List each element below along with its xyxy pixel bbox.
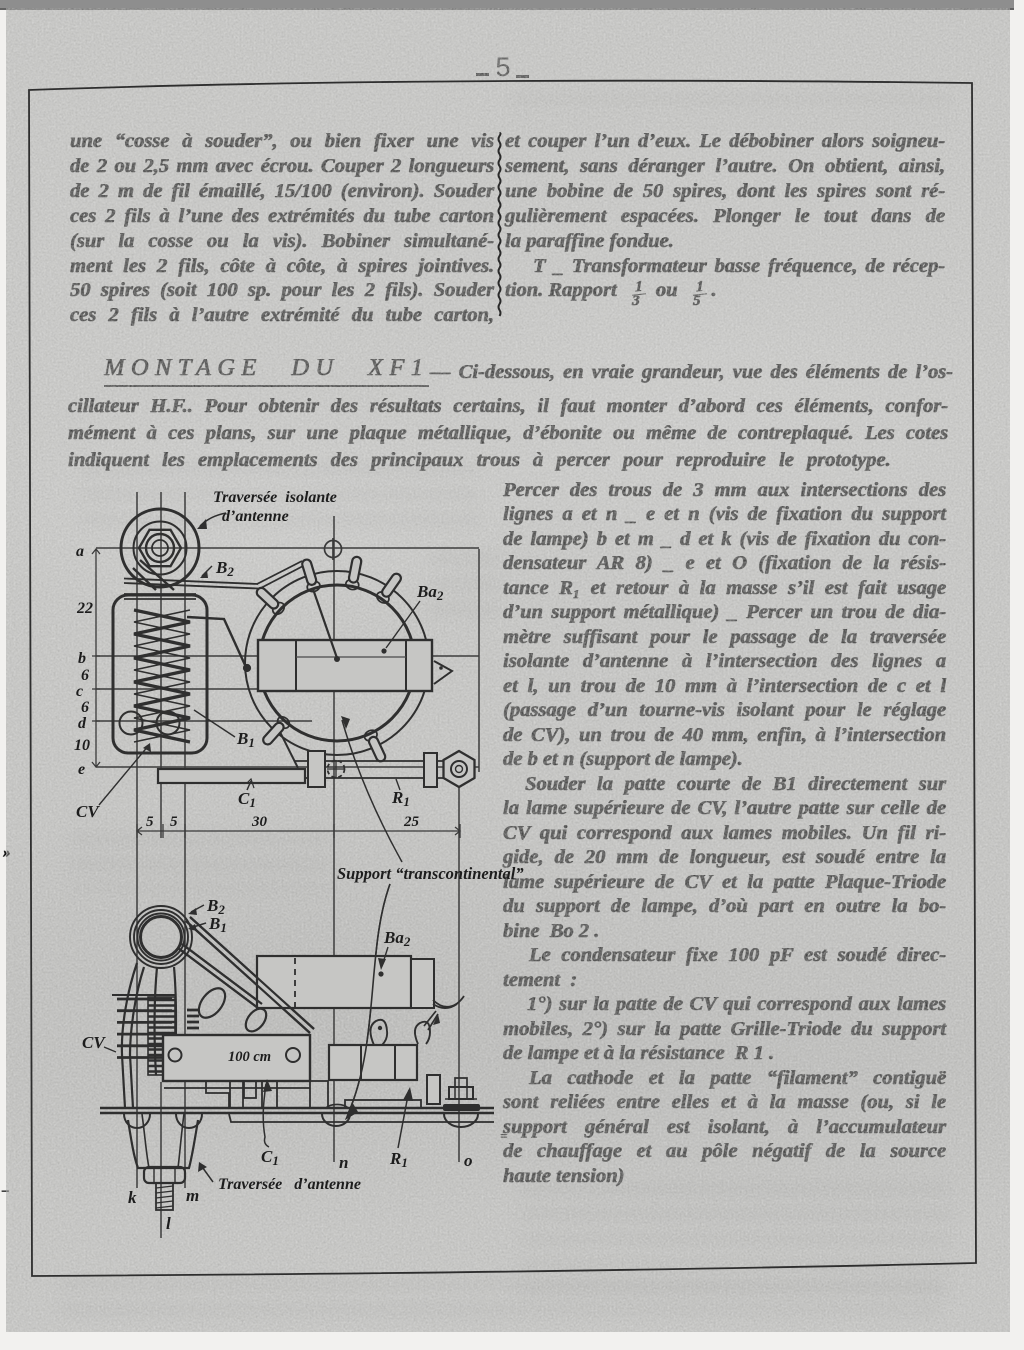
svg-text:Traversée isolante: Traversée isolante <box>213 489 337 506</box>
svg-text:m: m <box>186 1186 199 1205</box>
svg-text:k: k <box>128 1188 137 1207</box>
svg-text:l: l <box>166 1214 171 1233</box>
svg-text:5: 5 <box>146 814 154 830</box>
svg-text:5: 5 <box>170 814 178 830</box>
svg-text:CV: CV <box>82 1033 106 1052</box>
svg-text:6: 6 <box>81 699 89 716</box>
svg-text:d’antenne: d’antenne <box>222 508 289 525</box>
svg-text:CV: CV <box>76 802 100 821</box>
svg-text:100 cm: 100 cm <box>228 1049 271 1065</box>
svg-text:b: b <box>78 650 86 667</box>
svg-text:a: a <box>76 543 84 560</box>
svg-text:o: o <box>464 1151 473 1170</box>
svg-text:c: c <box>76 683 83 700</box>
svg-text:6: 6 <box>81 667 89 684</box>
svg-text:10: 10 <box>74 737 90 754</box>
svg-text:Traversée d’antenne: Traversée d’antenne <box>218 1176 361 1193</box>
svg-text:e: e <box>78 761 85 778</box>
svg-text:n: n <box>339 1153 348 1172</box>
svg-text:25: 25 <box>403 814 420 830</box>
svg-text:d: d <box>78 715 87 732</box>
svg-text:22: 22 <box>76 600 93 617</box>
svg-text:30: 30 <box>251 814 268 830</box>
svg-text:Support “transcontinental”: Support “transcontinental” <box>337 864 524 883</box>
